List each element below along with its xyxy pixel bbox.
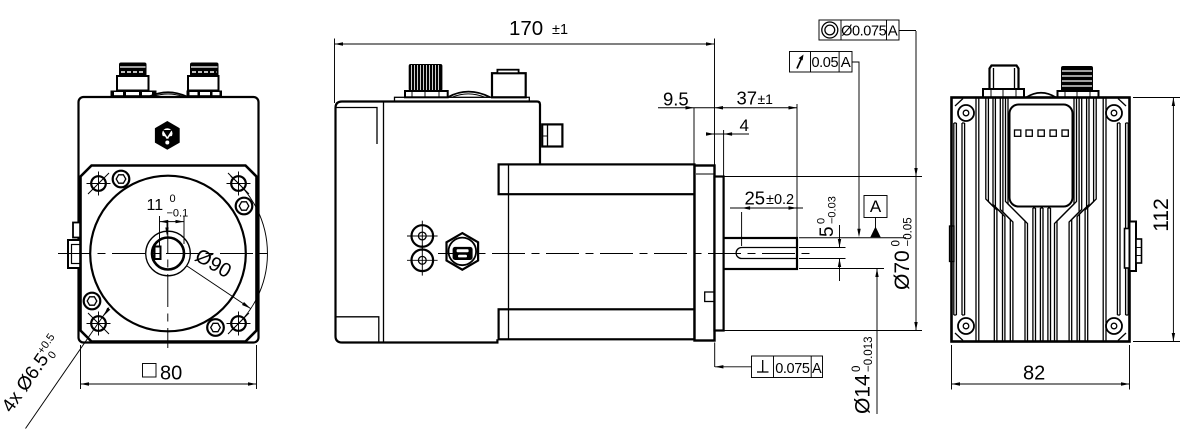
svg-text:80: 80 (160, 363, 182, 385)
svg-text:A: A (888, 23, 898, 40)
svg-text:4: 4 (740, 116, 749, 135)
svg-text:−0.05: −0.05 (903, 217, 915, 246)
svg-text:−0.03: −0.03 (827, 196, 839, 224)
svg-text:82: 82 (1023, 363, 1045, 385)
svg-text:25: 25 (745, 188, 766, 209)
svg-text:0.075: 0.075 (775, 361, 810, 377)
svg-text:5: 5 (817, 226, 838, 237)
svg-text:Ø14: Ø14 (852, 374, 875, 414)
svg-text:11: 11 (147, 197, 164, 214)
svg-text:−0.1: −0.1 (167, 208, 189, 220)
svg-text:170: 170 (509, 17, 543, 40)
svg-text:±0.2: ±0.2 (766, 192, 794, 208)
svg-text:A: A (870, 197, 882, 216)
svg-text:Ø0.075: Ø0.075 (841, 23, 886, 39)
svg-text:0: 0 (170, 193, 176, 205)
svg-text:37: 37 (737, 88, 758, 109)
svg-text:0.05: 0.05 (811, 55, 838, 71)
svg-text:0: 0 (891, 240, 903, 246)
svg-text:9.5: 9.5 (663, 89, 689, 110)
svg-text:−0.013: −0.013 (863, 337, 875, 373)
svg-text:±1: ±1 (758, 91, 774, 107)
svg-text:±1: ±1 (552, 22, 568, 38)
svg-text:112: 112 (1150, 198, 1173, 231)
svg-text:0: 0 (851, 366, 863, 372)
svg-text:Ø70: Ø70 (891, 250, 914, 290)
svg-text:A: A (812, 361, 822, 377)
svg-text:A: A (841, 54, 851, 71)
